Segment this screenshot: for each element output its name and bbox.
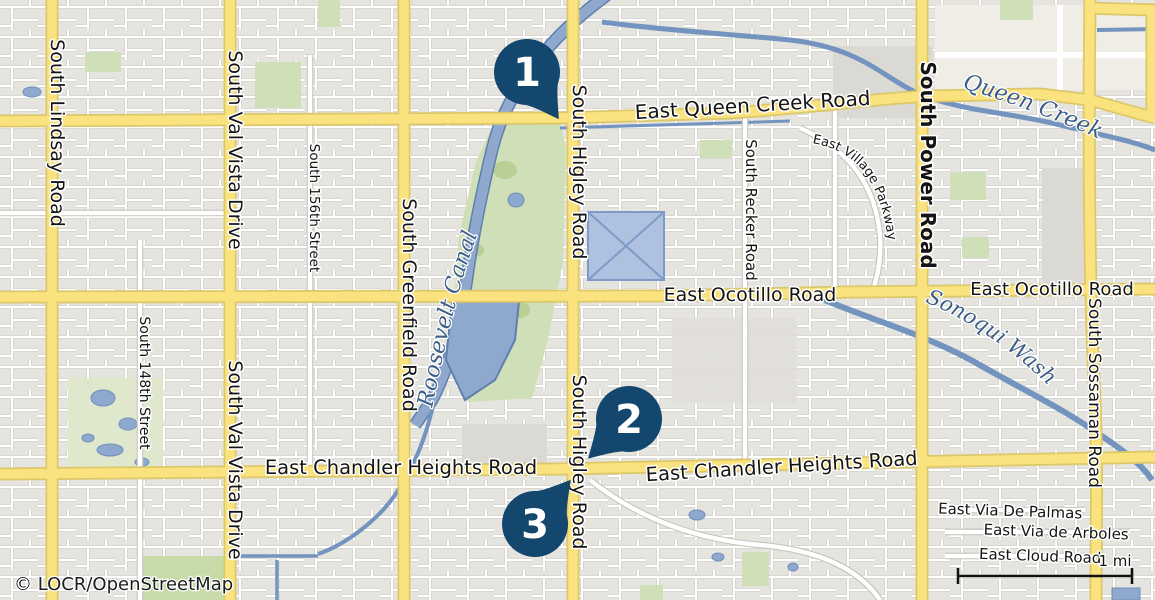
marker-number: 2 [615,397,643,443]
map-viewport: Roosevelt Canal Queen Creek Sonoqui Wash… [0,0,1155,600]
marker-number: 3 [521,502,549,548]
label-148th: South 148th Street [136,316,152,450]
label-val-vista-1: South Val Vista Drive [224,50,246,249]
label-chandler-heights-1: East Chandler Heights Road [265,456,537,479]
label-greenfield: South Greenfield Road [398,198,420,412]
label-ocotillo-1: East Ocotillo Road [664,284,837,306]
label-val-vista-2: South Val Vista Drive [224,360,246,559]
label-power: South Power Road [916,61,940,268]
label-higley-2: South Higley Road [568,375,590,550]
label-156th: South 156th Street [306,144,322,272]
map-canvas[interactable]: Roosevelt Canal Queen Creek Sonoqui Wash… [0,0,1155,600]
label-ocotillo-2: East Ocotillo Road [970,279,1134,300]
marker-number: 1 [513,50,541,96]
label-recker: South Recker Road [742,139,760,281]
label-lindsay: South Lindsay Road [46,39,68,227]
scale-bar-label: 1 mi [1098,552,1131,570]
attribution: © LOCR/OpenStreetMap [14,574,233,595]
label-higley-1: South Higley Road [568,85,590,260]
label-sossaman: South Sossaman Road [1084,298,1104,488]
basin [588,212,664,280]
